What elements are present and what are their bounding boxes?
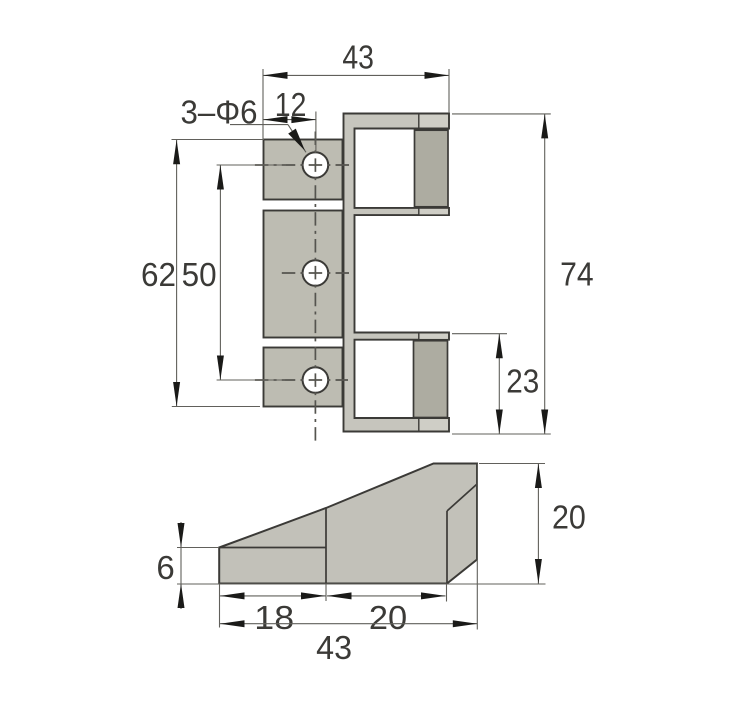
- svg-text:20: 20: [552, 498, 586, 535]
- svg-text:43: 43: [316, 629, 352, 666]
- svg-text:50: 50: [182, 256, 217, 293]
- svg-text:20: 20: [369, 599, 407, 636]
- svg-text:12: 12: [275, 86, 307, 123]
- svg-text:43: 43: [342, 38, 374, 75]
- svg-text:74: 74: [560, 256, 594, 293]
- svg-text:62: 62: [141, 256, 176, 293]
- svg-text:18: 18: [254, 599, 294, 636]
- svg-text:6: 6: [156, 549, 174, 586]
- svg-text:23: 23: [506, 363, 539, 400]
